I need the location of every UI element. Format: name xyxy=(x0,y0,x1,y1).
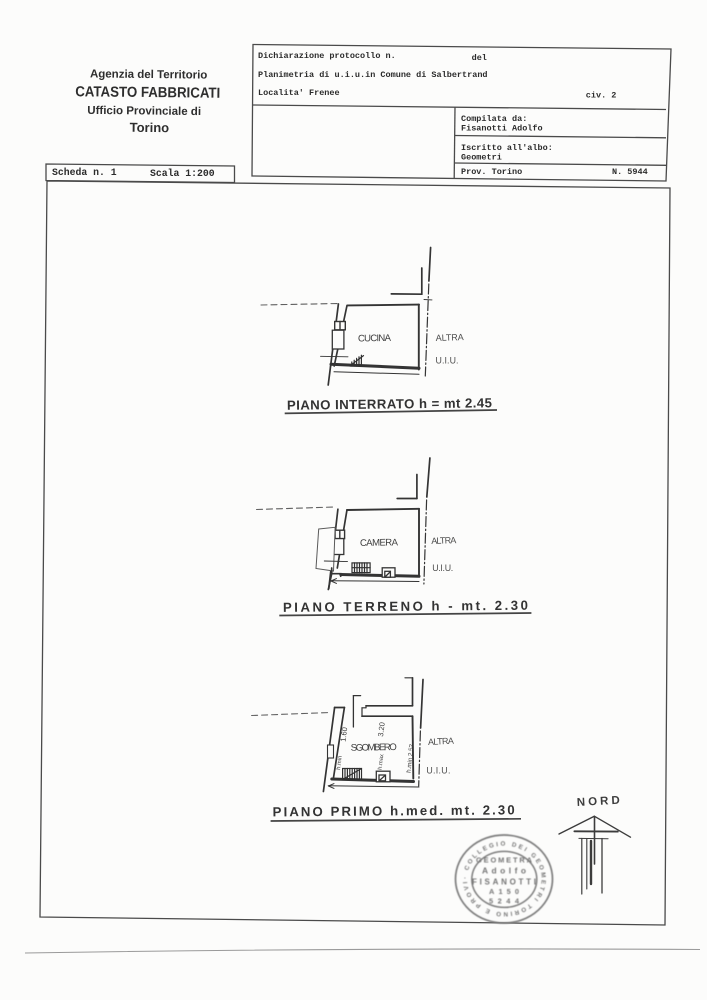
svg-text:· COLLEGIO DEI GEOMETRI TORINO: · COLLEGIO DEI GEOMETRI TORINO E PROVINC… xyxy=(0,0,547,917)
svg-text:Planimetria di u.i.u.in Comune: Planimetria di u.i.u.in Comune di Salber… xyxy=(258,70,488,80)
svg-text:A150: A150 xyxy=(489,887,519,896)
svg-text:civ. 2: civ. 2 xyxy=(586,91,617,101)
svg-text:PIANO PRIMO h.med. mt. 2.30: PIANO PRIMO h.med. mt. 2.30 xyxy=(273,802,515,819)
svg-text:h.max: h.max xyxy=(378,754,386,771)
svg-text:Ufficio Provinciale di: Ufficio Provinciale di xyxy=(87,105,201,118)
svg-text:Scheda n. 1: Scheda n. 1 xyxy=(52,167,117,178)
svg-text:Scala 1:200: Scala 1:200 xyxy=(150,168,215,179)
svg-text:Dichiarazione protocollo n.: Dichiarazione protocollo n. xyxy=(258,51,396,61)
svg-text:GEOMETRA: GEOMETRA xyxy=(476,856,533,865)
svg-text:1.60: 1.60 xyxy=(339,727,350,743)
svg-text:N. 5944: N. 5944 xyxy=(612,167,648,177)
svg-text:FISANOTTI: FISANOTTI xyxy=(472,878,536,887)
svg-text:U.I.U.: U.I.U. xyxy=(426,766,450,776)
svg-text:3.20: 3.20 xyxy=(376,722,387,738)
svg-text:U.I.U.: U.I.U. xyxy=(436,355,459,365)
svg-text:ALTRA: ALTRA xyxy=(431,535,456,546)
svg-text:Fisanotti Adolfo: Fisanotti Adolfo xyxy=(461,124,543,134)
svg-text:U.I.U.: U.I.U. xyxy=(432,563,453,573)
svg-text:del: del xyxy=(472,53,487,63)
svg-text:Localita' Frenee: Localita' Frenee xyxy=(258,88,340,98)
svg-text:Prov. Torino: Prov. Torino xyxy=(461,167,522,177)
svg-text:Adolfo: Adolfo xyxy=(482,866,526,876)
svg-text:NORD: NORD xyxy=(577,795,621,809)
svg-text:Torino: Torino xyxy=(130,120,170,135)
svg-text:Compilata da:: Compilata da: xyxy=(461,114,527,124)
svg-text:PIANO TERRENO h - mt. 2.30: PIANO TERRENO h - mt. 2.30 xyxy=(283,598,528,615)
svg-text:Geometri: Geometri xyxy=(461,153,502,163)
svg-text:ALTRA: ALTRA xyxy=(436,332,464,343)
svg-text:CATASTO FABBRICATI: CATASTO FABBRICATI xyxy=(75,84,220,102)
svg-text:SGOMBERO: SGOMBERO xyxy=(351,742,397,754)
svg-text:5244: 5244 xyxy=(489,897,520,906)
svg-text:ALTRA: ALTRA xyxy=(428,736,454,747)
svg-text:Iscritto all'albo:: Iscritto all'albo: xyxy=(461,143,553,153)
svg-text:Agenzia del Territorio: Agenzia del Territorio xyxy=(90,68,207,81)
svg-text:CAMERA: CAMERA xyxy=(360,537,399,549)
svg-text:CUCINA: CUCINA xyxy=(358,333,392,345)
